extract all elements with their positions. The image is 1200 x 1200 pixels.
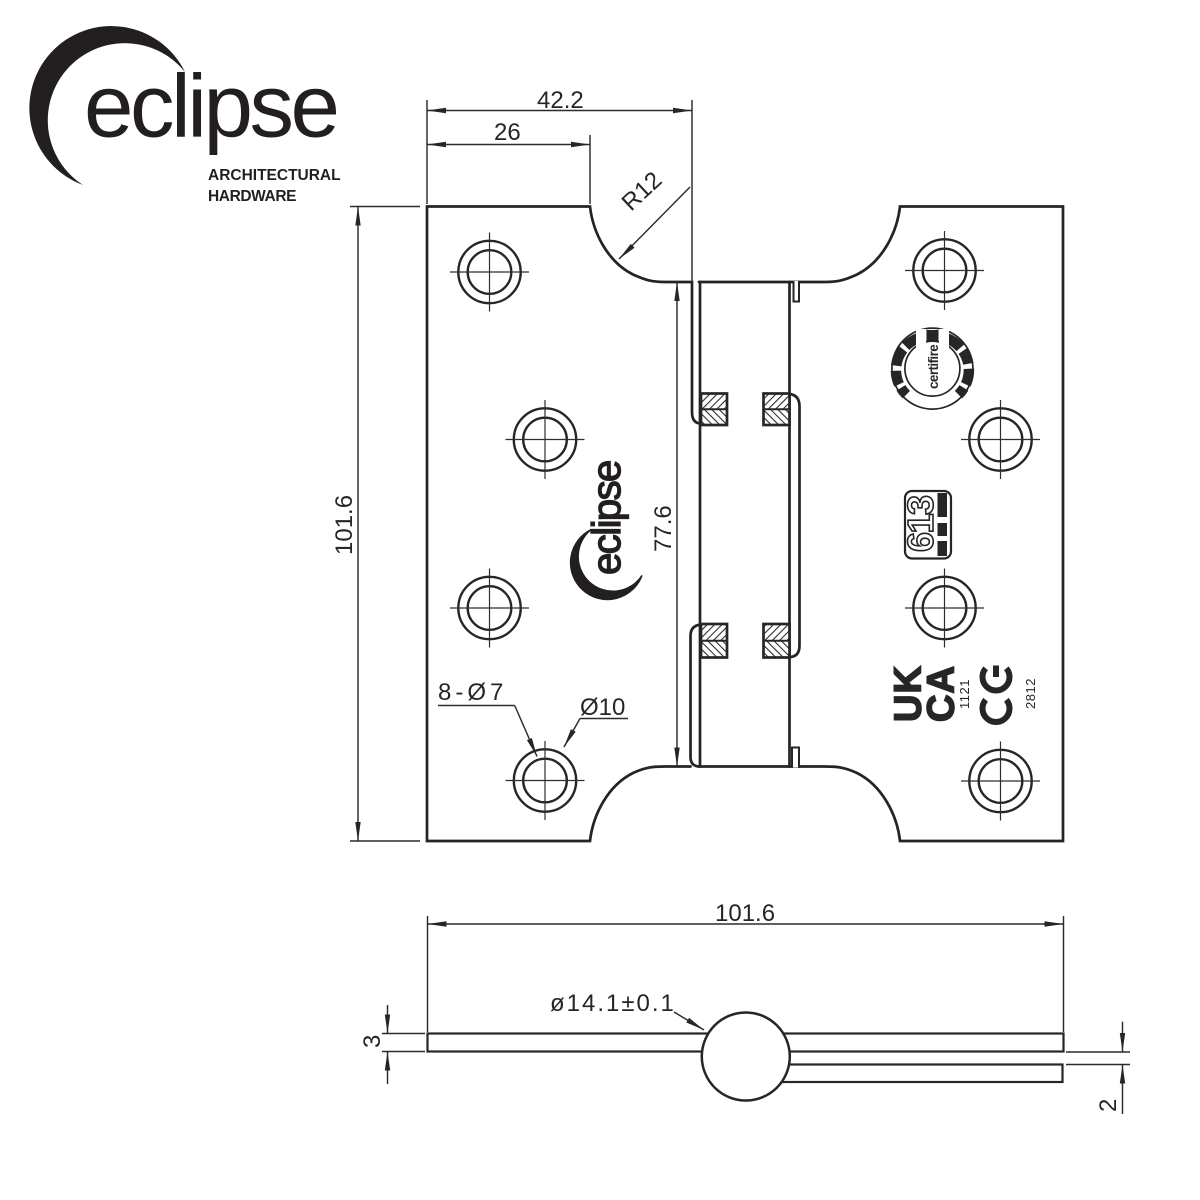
svg-text:101.6: 101.6 [715, 900, 775, 927]
svg-text:1121: 1121 [957, 679, 972, 709]
svg-text:ARCHITECTURAL: ARCHITECTURAL [208, 167, 341, 184]
svg-text:2: 2 [1095, 1099, 1122, 1112]
svg-text:HARDWARE: HARDWARE [208, 188, 296, 205]
svg-text:26: 26 [494, 119, 521, 146]
svg-text:8-Ø7: 8-Ø7 [438, 679, 507, 706]
svg-text:ø14.1±0.1: ø14.1±0.1 [550, 990, 676, 1017]
svg-text:101.6: 101.6 [331, 495, 358, 555]
svg-text:42.2: 42.2 [537, 87, 584, 114]
svg-text:77.6: 77.6 [650, 505, 677, 552]
svg-text:certifire: certifire [926, 344, 941, 389]
svg-text:3: 3 [359, 1035, 386, 1048]
svg-text:Ø10: Ø10 [580, 694, 625, 721]
svg-text:2812: 2812 [1023, 678, 1038, 709]
svg-text:613: 613 [900, 496, 941, 552]
